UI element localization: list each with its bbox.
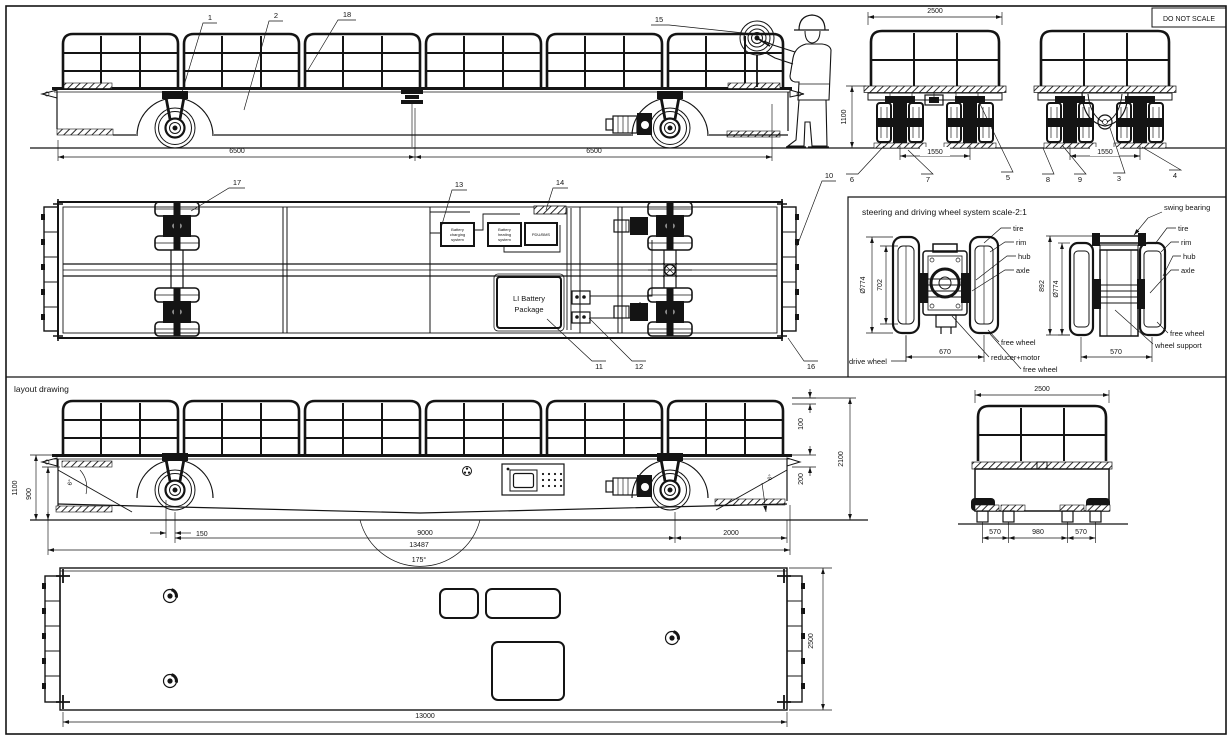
dim-deck-height: 1100 <box>12 480 19 495</box>
li-battery-label: Package <box>514 305 543 314</box>
control-panel <box>502 464 564 495</box>
deck-hatch-opening <box>492 642 564 700</box>
dim-step-height: 900 <box>26 488 33 500</box>
callout-18: 18 <box>343 10 351 19</box>
dim-track-center: 980 <box>1032 529 1044 536</box>
callout-1: 1 <box>208 13 212 22</box>
callout-16: 16 <box>807 362 815 371</box>
dim-track-a: 1550 <box>927 149 943 156</box>
front-bumper <box>42 576 60 702</box>
anchor-bolt <box>164 675 177 688</box>
callout-6: 6 <box>850 175 854 184</box>
emblem-badge <box>463 467 472 476</box>
pdu-bms-label: PDU/BMS <box>532 232 551 237</box>
callout-7: 7 <box>926 175 930 184</box>
dim-track-right: 570 <box>1075 529 1087 536</box>
dim-track-b: 1550 <box>1097 149 1113 156</box>
callout-2: 2 <box>274 11 278 20</box>
tire-label: tire <box>1178 224 1188 233</box>
caster-wheel <box>137 91 213 148</box>
drive-wheel-assembly <box>893 237 998 334</box>
junction-box <box>572 291 590 304</box>
callout-leaders <box>191 181 836 361</box>
callout-14: 14 <box>556 178 564 187</box>
dim-free-height: 892 <box>1039 280 1046 292</box>
end-wheel-group <box>1044 96 1096 148</box>
anchor-bolt <box>164 590 177 603</box>
dim-wheelbase: 9000 <box>417 530 433 537</box>
drive-motor <box>606 113 652 135</box>
wheel-support-label: wheel support <box>1154 341 1203 350</box>
do-not-scale-stamp: DO NOT SCALE <box>1152 8 1226 27</box>
rear-bumper <box>787 576 805 702</box>
layout-end-view: 2500 570 980 570 <box>958 386 1128 543</box>
free-wheel-label: free wheel <box>1001 338 1036 347</box>
end-wheel-group <box>874 96 926 148</box>
rear-bumper <box>782 207 799 331</box>
dim-bottom-angle: 175° <box>412 556 427 564</box>
li-battery-label: LI Battery <box>513 294 545 303</box>
plan-drive-wheel <box>648 288 692 336</box>
callout-11: 11 <box>595 362 603 371</box>
callout-8: 8 <box>1046 175 1050 184</box>
callout-3: 3 <box>1117 174 1121 183</box>
equipment-bay: Battery charging system Battery heating … <box>430 206 652 331</box>
free-wheel-label: free wheel <box>1023 365 1058 374</box>
dim-drive-dia: Ø774 <box>860 276 867 293</box>
dim-track-left: 570 <box>989 529 1001 536</box>
rim-label: rim <box>1016 238 1026 247</box>
dim-plan-width: 2500 <box>808 633 815 649</box>
steering-detail-title: steering and driving wheel system scale-… <box>862 207 1027 217</box>
callout-9: 9 <box>1078 175 1082 184</box>
mid-coupling <box>401 90 423 147</box>
junction-box <box>572 312 590 323</box>
callout-leaders <box>846 104 1013 174</box>
hub-label: hub <box>1018 252 1031 261</box>
battery-heating-label: system <box>498 237 511 242</box>
plan-view: Battery charging system Battery heating … <box>41 171 836 371</box>
dim-end-width: 2500 <box>1034 386 1050 393</box>
top-end-view-b: 1550 8 9 3 4 <box>1034 31 1181 184</box>
callout-15: 15 <box>655 15 663 24</box>
plan-drive-motor <box>614 217 648 235</box>
layout-drawing-label: layout drawing <box>14 384 69 394</box>
dim-rear-angle: 6° <box>767 473 775 481</box>
end-wheel-group <box>944 96 996 148</box>
drive-wheel-label: drive wheel <box>849 357 887 366</box>
plan-drive-wheel <box>648 202 692 250</box>
do-not-scale-label: DO NOT SCALE <box>1163 16 1215 23</box>
anchor-bolt <box>666 632 679 645</box>
callout-17: 17 <box>233 178 241 187</box>
layout-side-view: 1100 900 6° 6° 150 9000 13487 175° 2000 … <box>12 389 868 566</box>
top-end-view-a: 1100 2500 1550 6 7 5 <box>841 8 1013 184</box>
front-bumper <box>41 207 58 331</box>
dim-step-gap: 200 <box>798 473 805 485</box>
dim-rail-gap: 100 <box>798 418 805 430</box>
callout-4: 4 <box>1173 171 1177 180</box>
caster-wheel <box>137 453 213 510</box>
dim-rear-overhang: 2000 <box>723 530 739 537</box>
dim-drive-track: 670 <box>939 349 951 356</box>
deck-hatch-opening <box>440 589 478 618</box>
dim-width: 2500 <box>927 8 943 15</box>
layout-plan-view: 2500 13000 <box>42 568 832 727</box>
dim-height: 1100 <box>841 109 848 124</box>
tire-label: tire <box>1013 224 1023 233</box>
end-wheel-group <box>1114 96 1166 148</box>
dim-total-height: 2100 <box>838 451 845 467</box>
reducer-motor-label: reducer+motor <box>991 353 1040 362</box>
battery-charging-label: system <box>451 237 464 242</box>
rim-label: rim <box>1181 238 1191 247</box>
plan-caster-wheel <box>155 202 199 250</box>
dim-front-span: 6500 <box>229 148 245 155</box>
dim-wheel-offset: 150 <box>196 531 208 538</box>
axle-label: axle <box>1016 266 1030 275</box>
axle-label: axle <box>1181 266 1195 275</box>
dim-plan-length: 13000 <box>415 713 435 720</box>
tow-hitch-rear <box>790 90 804 97</box>
label-leaders <box>891 228 1021 369</box>
steering-detail-frame <box>848 197 1226 377</box>
hub-label: hub <box>1183 252 1196 261</box>
deck-hatch-opening <box>486 589 560 618</box>
dim-overall-length: 13487 <box>409 542 429 549</box>
swing-bearing-label: swing bearing <box>1164 203 1210 212</box>
steering-detail: steering and driving wheel system scale-… <box>849 203 1210 374</box>
dim-front-angle: 6° <box>67 479 74 487</box>
center-axle-joint <box>648 263 692 277</box>
dim-drive-rim: 702 <box>877 279 884 291</box>
free-wheel-label: free wheel <box>1170 329 1205 338</box>
callout-5: 5 <box>1006 173 1010 182</box>
callout-10: 10 <box>825 171 833 180</box>
drawing-canvas: DO NOT SCALE <box>0 0 1232 740</box>
dim-free-dia: Ø774 <box>1053 280 1060 297</box>
tow-hitch-front <box>42 90 57 98</box>
drive-motor <box>606 475 652 497</box>
dim-free-track: 570 <box>1110 349 1122 356</box>
dim-rear-span: 6500 <box>586 148 602 155</box>
callout-12: 12 <box>635 362 643 371</box>
free-wheel-assembly <box>1070 233 1165 336</box>
callout-13: 13 <box>455 180 463 189</box>
label-leaders <box>1115 212 1181 344</box>
plan-caster-wheel <box>155 288 199 336</box>
cad-sheet: DO NOT SCALE <box>0 0 1232 740</box>
